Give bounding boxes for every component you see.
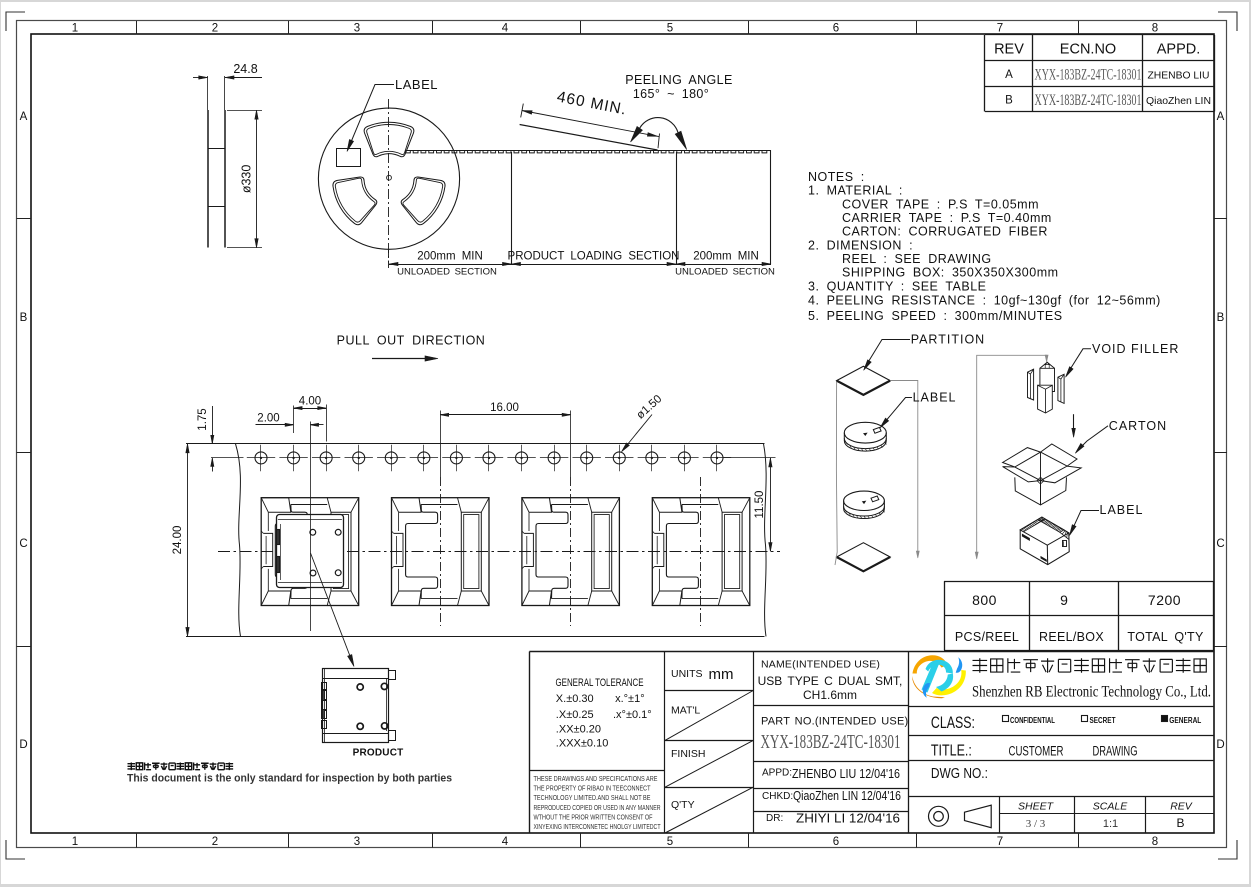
svg-text:PULL OUT DIRECTION: PULL OUT DIRECTION xyxy=(337,334,486,348)
svg-text:XYX-183BZ-24TC-18301: XYX-183BZ-24TC-18301 xyxy=(1035,67,1142,84)
svg-text:7: 7 xyxy=(997,836,1003,848)
svg-text:PCS/REEL: PCS/REEL xyxy=(955,630,1019,644)
svg-text:TOTAL Q'TY: TOTAL Q'TY xyxy=(1127,630,1204,644)
svg-text:SHEET: SHEET xyxy=(1018,801,1055,813)
svg-text:MAT'L: MAT'L xyxy=(671,705,700,717)
svg-text:CHKD:: CHKD: xyxy=(762,791,793,802)
svg-text:200mm MIN: 200mm MIN xyxy=(693,251,759,263)
svg-text:5. PEELING SPEED : 300mm/MINUT: 5. PEELING SPEED : 300mm/MINUTES xyxy=(808,309,1063,323)
svg-text:3. QUANTITY : SEE TABLE: 3. QUANTITY : SEE TABLE xyxy=(808,279,987,293)
svg-text:4.00: 4.00 xyxy=(299,395,321,407)
svg-text:8: 8 xyxy=(1152,836,1158,848)
svg-text:B: B xyxy=(1217,312,1225,324)
svg-text:24.00: 24.00 xyxy=(172,526,184,555)
svg-text:XINYEXING INTERCONNETEC HNOLGY: XINYEXING INTERCONNETEC HNOLGY LIMITEDCT xyxy=(534,824,662,831)
svg-text:This document is the only stan: This document is the only standard for i… xyxy=(127,773,452,785)
svg-text:x.°±1°: x.°±1° xyxy=(615,693,645,705)
svg-text:GENERAL TOLERANCE: GENERAL TOLERANCE xyxy=(556,677,644,689)
svg-text:6: 6 xyxy=(833,23,839,35)
svg-text:Shenzhen RB Electronic Technol: Shenzhen RB Electronic Technology Co., L… xyxy=(972,684,1211,701)
svg-text:DWG NO.:: DWG NO.: xyxy=(931,765,988,782)
svg-text:.XXX±0.10: .XXX±0.10 xyxy=(556,738,609,750)
svg-text:.x°±0.1°: .x°±0.1° xyxy=(613,709,652,721)
svg-text:1. MATERIAL :: 1. MATERIAL : xyxy=(808,184,903,198)
svg-text:DRAWING: DRAWING xyxy=(1093,744,1138,759)
svg-text:B: B xyxy=(1176,816,1184,830)
svg-text:XYX-183BZ-24TC-18301: XYX-183BZ-24TC-18301 xyxy=(761,731,901,753)
svg-text:ZHIYI LI 12/04'16: ZHIYI LI 12/04'16 xyxy=(796,812,900,826)
svg-text:CH1.6mm: CH1.6mm xyxy=(803,688,857,702)
svg-text:REV: REV xyxy=(994,42,1024,58)
svg-text:ZHENBO LIU 12/04'16: ZHENBO LIU 12/04'16 xyxy=(792,767,900,781)
svg-text:9: 9 xyxy=(1060,592,1068,608)
svg-text:PRODUCT LOADING SECTION: PRODUCT LOADING SECTION xyxy=(508,251,680,263)
svg-text:CONFIDENTIAL: CONFIDENTIAL xyxy=(1010,716,1055,725)
svg-text:7: 7 xyxy=(997,23,1003,35)
svg-text:1: 1 xyxy=(72,23,78,35)
svg-text:Q'TY: Q'TY xyxy=(671,799,695,811)
svg-text:4: 4 xyxy=(502,836,509,848)
svg-text:X.±0.30: X.±0.30 xyxy=(556,693,594,705)
svg-text:A: A xyxy=(20,111,28,123)
svg-text:D: D xyxy=(19,739,27,751)
svg-text:TECHNOLOGY LIMITED.AND SHALL N: TECHNOLOGY LIMITED.AND SHALL NOT BE xyxy=(534,795,651,802)
svg-text:A: A xyxy=(1005,69,1013,81)
svg-text:REEL/BOX: REEL/BOX xyxy=(1039,630,1104,644)
svg-text:2: 2 xyxy=(212,836,218,848)
svg-text:THESE DRAWINGS AND SPECIFICATI: THESE DRAWINGS AND SPECIFICATIONS ARE xyxy=(534,776,658,783)
svg-text:SCALE: SCALE xyxy=(1093,801,1128,813)
svg-text:LABEL: LABEL xyxy=(913,391,957,405)
svg-text:CUSTOMER: CUSTOMER xyxy=(1009,744,1064,759)
svg-text:2. DIMENSION :: 2. DIMENSION : xyxy=(808,238,913,252)
svg-text:LABEL: LABEL xyxy=(395,77,438,92)
svg-text:DR:: DR: xyxy=(766,813,783,824)
svg-text:1:1: 1:1 xyxy=(1103,818,1118,830)
svg-text:XYX-183BZ-24TC-18301: XYX-183BZ-24TC-18301 xyxy=(1035,92,1142,109)
svg-text:PEELING ANGLE: PEELING ANGLE xyxy=(625,73,733,87)
svg-text:B: B xyxy=(1005,95,1013,107)
svg-text:UNLOADED SECTION: UNLOADED SECTION xyxy=(675,267,775,278)
svg-text:NAME(INTENDED USE): NAME(INTENDED USE) xyxy=(761,659,880,671)
svg-text:REPRODUCED COPIED OR USED IN A: REPRODUCED COPIED OR USED IN ANY MANNER xyxy=(534,805,661,812)
svg-text:3: 3 xyxy=(354,836,360,848)
svg-text:COVER TAPE : P.S T=0.05mm: COVER TAPE : P.S T=0.05mm xyxy=(842,197,1039,211)
svg-text:PART NO.(INTENDED USE): PART NO.(INTENDED USE) xyxy=(761,716,908,728)
svg-text:mm: mm xyxy=(709,666,734,683)
svg-text:1.75: 1.75 xyxy=(197,408,209,430)
svg-text:1: 1 xyxy=(72,836,78,848)
svg-text:CARTON: CORRUGATED FIBER: CARTON: CORRUGATED FIBER xyxy=(842,225,1048,239)
svg-text:SHIPPING BOX: 350X350X300mm: SHIPPING BOX: 350X350X300mm xyxy=(842,266,1059,280)
svg-text:7200: 7200 xyxy=(1148,592,1181,608)
svg-text:3 / 3: 3 / 3 xyxy=(1026,818,1046,830)
svg-text:C: C xyxy=(19,538,27,550)
svg-text:APPD:: APPD: xyxy=(762,768,792,779)
svg-text:ZHENBO LIU: ZHENBO LIU xyxy=(1148,70,1210,82)
svg-text:GENERAL: GENERAL xyxy=(1169,716,1201,725)
svg-text:B: B xyxy=(20,312,28,324)
svg-text:ø330: ø330 xyxy=(240,165,254,194)
svg-text:ECN.NO: ECN.NO xyxy=(1060,42,1116,58)
svg-text:UNITS: UNITS xyxy=(671,668,703,680)
svg-text:UNLOADED SECTION: UNLOADED SECTION xyxy=(397,267,497,278)
svg-text:C: C xyxy=(1216,538,1224,550)
svg-text:D: D xyxy=(1216,739,1224,751)
svg-text:A: A xyxy=(1217,111,1225,123)
svg-text:NOTES :: NOTES : xyxy=(808,170,865,184)
svg-text:6: 6 xyxy=(833,836,839,848)
svg-text:2: 2 xyxy=(212,23,218,35)
svg-text:800: 800 xyxy=(972,592,997,608)
svg-text:THE PROPERTY OF RIBAO IN TEECO: THE PROPERTY OF RIBAO IN TEECONNECT xyxy=(534,786,652,793)
svg-text:FINISH: FINISH xyxy=(671,748,705,760)
svg-text:CARTON: CARTON xyxy=(1109,419,1167,433)
svg-text:REV: REV xyxy=(1170,801,1193,813)
svg-text:8: 8 xyxy=(1152,23,1158,35)
svg-text:5: 5 xyxy=(667,836,673,848)
svg-text:WTHOUT THE PRIOR WRITTEN CONS: WTHOUT THE PRIOR WRITTEN CONSENT OF xyxy=(534,814,653,821)
svg-text:24.8: 24.8 xyxy=(233,62,257,76)
svg-text:.XX±0.20: .XX±0.20 xyxy=(556,724,601,736)
svg-text:LABEL: LABEL xyxy=(1100,503,1144,517)
svg-text:200mm MIN: 200mm MIN xyxy=(417,251,483,263)
svg-text:5: 5 xyxy=(667,23,673,35)
svg-text:165° ~ 180°: 165° ~ 180° xyxy=(633,87,709,101)
svg-text:2.00: 2.00 xyxy=(257,412,279,424)
svg-text:CLASS:: CLASS: xyxy=(931,714,975,732)
svg-text:REEL : SEE DRAWING: REEL : SEE DRAWING xyxy=(842,252,992,266)
svg-text:USB TYPE C DUAL SMT,: USB TYPE C DUAL SMT, xyxy=(758,674,903,688)
svg-text:PRODUCT: PRODUCT xyxy=(353,748,404,759)
svg-text:PARTITION: PARTITION xyxy=(911,333,986,347)
svg-text:3: 3 xyxy=(354,23,360,35)
svg-text:4. PEELING RESISTANCE : 10gf~1: 4. PEELING RESISTANCE : 10gf~130gf (for … xyxy=(808,293,1161,307)
svg-text:.X±0.25: .X±0.25 xyxy=(556,709,594,721)
svg-text:CARRIER TAPE : P.S T=0.40mm: CARRIER TAPE : P.S T=0.40mm xyxy=(842,211,1052,225)
svg-text:TITLE.:: TITLE.: xyxy=(931,743,972,760)
svg-text:QiaoZhen LIN: QiaoZhen LIN xyxy=(1146,95,1211,107)
svg-text:VOID FILLER: VOID FILLER xyxy=(1092,342,1179,356)
svg-text:11.50: 11.50 xyxy=(754,491,766,519)
svg-text:APPD.: APPD. xyxy=(1157,42,1201,58)
svg-text:SECRET: SECRET xyxy=(1090,716,1116,725)
svg-text:QiaoZhen LIN 12/04'16: QiaoZhen LIN 12/04'16 xyxy=(793,789,901,803)
svg-text:4: 4 xyxy=(502,23,509,35)
svg-text:16.00: 16.00 xyxy=(490,402,519,414)
